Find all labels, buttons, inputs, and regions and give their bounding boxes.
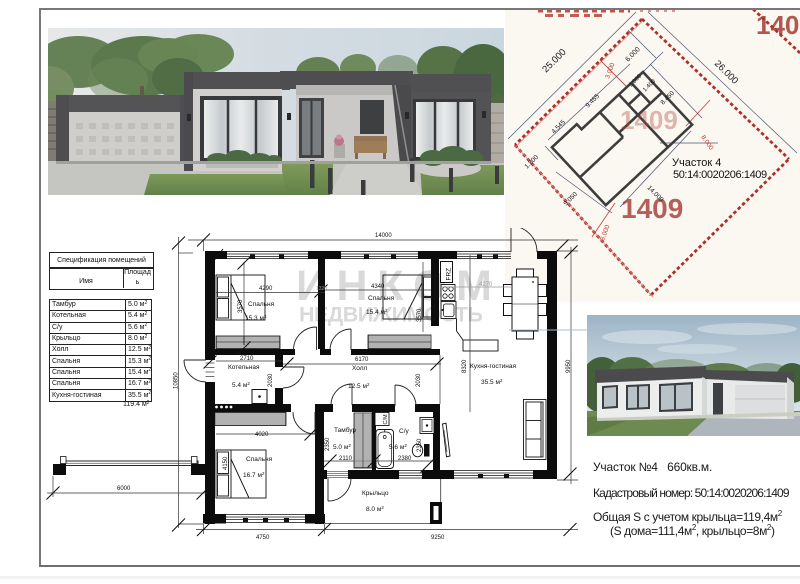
svg-text:10850: 10850 [174, 372, 180, 389]
svg-text:6170: 6170 [355, 357, 369, 363]
svg-text:50:14:0020206:1409: 50:14:0020206:1409 [673, 169, 767, 181]
svg-text:15.4 м2: 15.4 м2 [366, 308, 388, 316]
svg-text:2710: 2710 [240, 356, 254, 362]
svg-text:12.5 м2: 12.5 м2 [348, 382, 370, 390]
svg-text:4340: 4340 [371, 284, 385, 290]
svg-text:С/у: С/у [399, 428, 410, 435]
svg-text:15.3 м2: 15.3 м2 [245, 314, 267, 322]
svg-text:Спальня: Спальня [368, 295, 395, 302]
svg-text:1409: 1409 [620, 105, 678, 135]
svg-text:16.7 м2: 16.7 м2 [243, 471, 265, 479]
svg-text:Кухня-гостиная: Кухня-гостиная [470, 363, 516, 370]
svg-text:5.6 м2: 5.6 м2 [389, 443, 407, 451]
svg-text:1409: 1409 [621, 193, 683, 224]
svg-text:35.5 м2: 35.5 м2 [481, 378, 503, 386]
svg-text:4270: 4270 [479, 282, 493, 288]
svg-text:4150: 4150 [223, 456, 229, 470]
svg-text:2350: 2350 [325, 437, 331, 451]
svg-text:8.0 м2: 8.0 м2 [366, 505, 384, 513]
svg-text:2030: 2030 [416, 373, 422, 387]
svg-text:Спальня: Спальня [246, 456, 273, 463]
svg-text:2380: 2380 [398, 456, 412, 462]
svg-text:9250: 9250 [431, 535, 445, 541]
svg-text:2350: 2350 [417, 438, 423, 452]
svg-text:4750: 4750 [256, 535, 270, 541]
svg-text:FRZ: FRZ [446, 268, 453, 281]
svg-text:9950: 9950 [566, 359, 572, 373]
svg-text:Котельная: Котельная [228, 364, 260, 371]
svg-text:2110: 2110 [339, 456, 353, 462]
svg-text:5.4 м2: 5.4 м2 [232, 381, 250, 389]
svg-text:14000: 14000 [375, 233, 392, 239]
svg-text:3570: 3570 [238, 299, 244, 313]
svg-text:4020: 4020 [255, 432, 269, 438]
svg-text:4290: 4290 [259, 286, 273, 292]
svg-text:1409: 1409 [756, 10, 800, 40]
svg-text:С/М: С/М [383, 414, 389, 425]
svg-text:Крыльцо: Крыльцо [362, 490, 389, 497]
svg-text:Тамбур: Тамбур [334, 426, 356, 434]
svg-text:5.0 м2: 5.0 м2 [333, 443, 351, 451]
svg-text:1320: 1320 [316, 286, 327, 292]
svg-text:8320: 8320 [462, 359, 468, 373]
svg-text:Спальня: Спальня [248, 301, 275, 308]
svg-text:3570: 3570 [417, 308, 423, 322]
svg-text:Холл: Холл [352, 365, 368, 372]
svg-text:Участок 4: Участок 4 [672, 157, 721, 169]
svg-text:2030: 2030 [268, 373, 274, 387]
svg-text:6000: 6000 [117, 486, 131, 492]
